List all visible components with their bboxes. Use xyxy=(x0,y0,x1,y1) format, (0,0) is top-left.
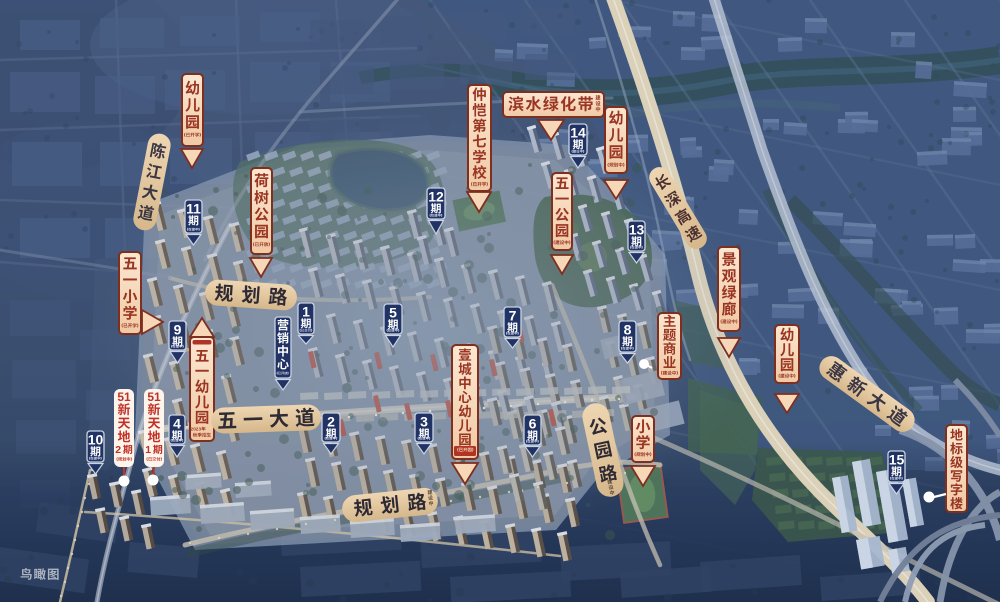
svg-text:12: 12 xyxy=(428,189,444,205)
svg-text:1: 1 xyxy=(302,304,310,320)
svg-text:4: 4 xyxy=(173,416,181,432)
svg-text:5: 5 xyxy=(389,305,397,321)
svg-text:6: 6 xyxy=(529,416,537,432)
svg-text:1: 1 xyxy=(145,444,151,456)
svg-text:15: 15 xyxy=(889,452,905,468)
svg-text:10: 10 xyxy=(88,432,104,448)
svg-text:3: 3 xyxy=(199,426,202,431)
svg-text:2: 2 xyxy=(327,414,335,430)
svg-text:51: 51 xyxy=(117,390,131,404)
svg-text:51: 51 xyxy=(147,390,161,404)
svg-text:13: 13 xyxy=(629,222,645,238)
svg-text:11: 11 xyxy=(186,201,201,217)
svg-text:2: 2 xyxy=(115,444,121,456)
svg-text:14: 14 xyxy=(570,125,586,141)
svg-text:3: 3 xyxy=(420,414,428,430)
svg-text:9: 9 xyxy=(174,322,182,338)
svg-text:7: 7 xyxy=(509,308,517,324)
svg-text:8: 8 xyxy=(624,322,632,338)
